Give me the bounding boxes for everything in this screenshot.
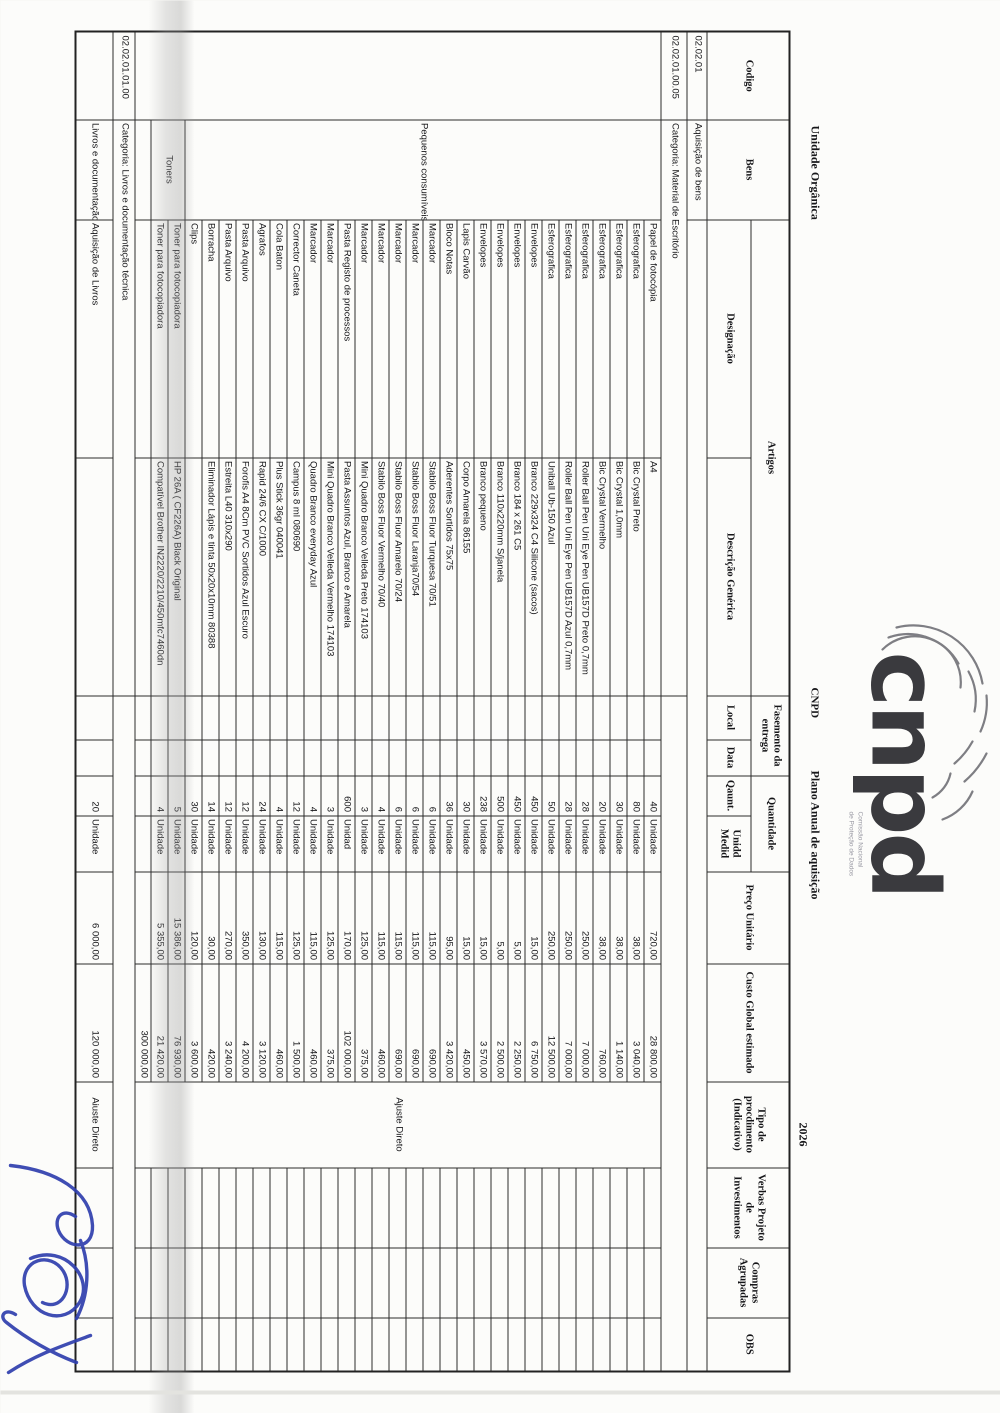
cell-data xyxy=(627,739,644,775)
cell-designacao: Pasta Arquivo xyxy=(236,219,253,457)
cell-custo: 375,00 xyxy=(355,963,372,1081)
table-row: Cola BatonPlus Stick 36gr 0400414Unidade… xyxy=(270,31,287,1371)
cell-descricao: Rapid 24/6 CX C/1000 xyxy=(253,457,270,695)
cell-custo: 7 000,00 xyxy=(559,963,576,1081)
cell-qty: 238 xyxy=(474,775,491,815)
cell-descricao: A4 xyxy=(644,457,661,695)
cell-designacao: Envelopes xyxy=(508,219,525,457)
cell-unit: Unidade xyxy=(440,815,457,871)
cell-qty: 12 xyxy=(236,775,253,815)
cell-local xyxy=(508,695,525,739)
signature xyxy=(0,1130,150,1413)
cell-local xyxy=(253,695,270,739)
cell-qty: 14 xyxy=(202,775,219,815)
cell-verbas xyxy=(270,1167,287,1247)
cell-tipo-procedimento: Ajuste Direto xyxy=(135,1081,661,1167)
cell-data xyxy=(202,739,219,775)
cell-obs xyxy=(253,1317,270,1371)
cell-local xyxy=(185,695,202,739)
cell-data xyxy=(135,739,151,775)
cell-unit: Unidade xyxy=(525,815,542,871)
table-row: Toner para fotocopiadoraCompatível Broth… xyxy=(151,31,168,1371)
cell-custo: 2 500,00 xyxy=(491,963,508,1081)
cell-local xyxy=(440,695,457,739)
cell-qty: 600 xyxy=(338,775,355,815)
cell-designacao: Cola Baton xyxy=(270,219,287,457)
cell-designacao: Pasta Arquivo xyxy=(219,219,236,457)
cell-preco: 5,00 xyxy=(508,871,525,963)
cell-unit: Unidad xyxy=(338,815,355,871)
cell-unit: Unidade xyxy=(491,815,508,871)
cell-local xyxy=(593,695,610,739)
row-aquisicao-bens: 02.02.01Aquisição de bens xyxy=(687,31,707,1371)
cell-data xyxy=(474,739,491,775)
cell-group-pequenos-consumiveis: Pequenos consumíveis xyxy=(185,119,661,219)
cell-qty: 24 xyxy=(253,775,270,815)
org-label: Unidade Orgânica xyxy=(807,125,822,219)
cell-obs xyxy=(287,1317,304,1371)
table-row: EsferograficaBic Crystal Preto80Unidade3… xyxy=(627,31,644,1371)
cell-qty: 3 xyxy=(321,775,338,815)
cell-compras xyxy=(389,1247,406,1317)
cell-designacao: Toner para fotocopiadora xyxy=(168,219,185,457)
cell-unit: Unidade xyxy=(423,815,440,871)
table-body: 02.02.01Aquisição de bens02.02.01.00.05C… xyxy=(75,31,707,1371)
cell-data xyxy=(610,739,627,775)
cell-local xyxy=(321,695,338,739)
cell-custo: 460,00 xyxy=(304,963,321,1081)
cell-local xyxy=(287,695,304,739)
cell-designacao: Marcador xyxy=(389,219,406,457)
cell-compras xyxy=(576,1247,593,1317)
table-row: MarcadorStabilo Boss Fluor Turquesa 70/5… xyxy=(423,31,440,1371)
cell-preco: 5,00 xyxy=(491,871,508,963)
cell-verbas xyxy=(423,1167,440,1247)
cell-preco: 95,00 xyxy=(440,871,457,963)
cell-verbas xyxy=(576,1167,593,1247)
cell-local xyxy=(389,695,406,739)
cell-codigo: 02.02.01.01.00 xyxy=(113,31,135,119)
col-header-custo: Custo Global estimado xyxy=(707,963,789,1081)
logo-wordmark: cnpd xyxy=(849,651,958,896)
cell-verbas xyxy=(168,1167,185,1247)
cell-qty: 30 xyxy=(185,775,202,815)
cell-custo: 3 240,00 xyxy=(219,963,236,1081)
cell-local xyxy=(491,695,508,739)
cell-unit: Unidade xyxy=(542,815,559,871)
cell-data xyxy=(423,739,440,775)
cell-qty: 6 xyxy=(423,775,440,815)
cell-group-toners: Toners xyxy=(151,119,185,219)
cell-preco: 115,00 xyxy=(304,871,321,963)
cell-preco: 38,00 xyxy=(627,871,644,963)
cell-empty xyxy=(687,219,707,1371)
cell-local xyxy=(338,695,355,739)
cell-qty: 4 xyxy=(151,775,168,815)
cell-unit: Unidade xyxy=(644,815,661,871)
cell-obs xyxy=(389,1317,406,1371)
cell-verbas xyxy=(491,1167,508,1247)
cell-obs xyxy=(338,1317,355,1371)
cell-data xyxy=(287,739,304,775)
cell-designacao: Papel de fotocópia xyxy=(644,219,661,457)
cell-compras xyxy=(236,1247,253,1317)
cell-preco: 5 355,00 xyxy=(151,871,168,963)
cell-descricao xyxy=(75,457,113,695)
cell-local xyxy=(151,695,168,739)
cell-qty: 450 xyxy=(525,775,542,815)
table-row: MarcadorQuadro Branco everyday Azul4Unid… xyxy=(304,31,321,1371)
cell-qty: 4 xyxy=(372,775,389,815)
cell-designacao: Marcador xyxy=(321,219,338,457)
cell-compras xyxy=(644,1247,661,1317)
cell-designacao: Esferografica xyxy=(610,219,627,457)
cell-obs xyxy=(185,1317,202,1371)
cell-verbas xyxy=(542,1167,559,1247)
cell-preco: 720,00 xyxy=(644,871,661,963)
cell-preco xyxy=(135,871,151,963)
cell-verbas xyxy=(202,1167,219,1247)
cell-custo: 4 200,00 xyxy=(236,963,253,1081)
rotated-sheet: cnpd Comissão Nacional de Proteção de Da… xyxy=(0,0,1000,1413)
cell-designacao: Marcador xyxy=(423,219,440,457)
cell-data xyxy=(219,739,236,775)
cell-verbas xyxy=(525,1167,542,1247)
cell-designacao: Esferografica xyxy=(593,219,610,457)
cell-data xyxy=(75,739,113,775)
cell-obs xyxy=(525,1317,542,1371)
cell-verbas xyxy=(304,1167,321,1247)
cell-designacao: Pasta Registo de processos xyxy=(338,219,355,457)
cell-custo: 28 800,00 xyxy=(644,963,661,1081)
header-super-row: Codigo Bens Artigos Fasemento da entrega… xyxy=(751,31,789,1371)
cell-local xyxy=(304,695,321,739)
table-row: MarcadorMini Quadro Branco Velleda Preto… xyxy=(355,31,372,1371)
cell-data xyxy=(406,739,423,775)
cell-descricao xyxy=(135,457,151,695)
cell-local xyxy=(406,695,423,739)
cell-obs xyxy=(644,1317,661,1371)
cell-verbas xyxy=(474,1167,491,1247)
cell-obs xyxy=(372,1317,389,1371)
cell-unit: Unidade xyxy=(355,815,372,871)
cell-preco: 15 386,00 xyxy=(168,871,185,963)
table-row: BorrachaEliminador Lápis e tinta 50x20x1… xyxy=(202,31,219,1371)
cell-custo: 21 420,00 xyxy=(151,963,168,1081)
cell-categoria-label: Categoria: Livros e documentação técnica xyxy=(113,119,135,695)
cell-compras xyxy=(457,1247,474,1317)
cell-local xyxy=(610,695,627,739)
cell-designacao: Esferografica xyxy=(559,219,576,457)
cell-data xyxy=(338,739,355,775)
cell-compras xyxy=(542,1247,559,1317)
cell-custo: 375,00 xyxy=(321,963,338,1081)
cell-descricao: Estreita L40 310x290 xyxy=(219,457,236,695)
col-header-preco: Preço Unitário xyxy=(707,871,789,963)
cell-compras xyxy=(372,1247,389,1317)
cell-designacao: Clips xyxy=(185,219,202,457)
cell-unit: Unidade xyxy=(270,815,287,871)
cell-qty: 500 xyxy=(491,775,508,815)
cell-designacao: Marcador xyxy=(372,219,389,457)
table-row: EsferograficaUniball Ub-150 Azul50Unidad… xyxy=(542,31,559,1371)
cell-unit: Unidade xyxy=(372,815,389,871)
cell-descricao: Pasta Assuntos Azul, Branco e Amarela xyxy=(338,457,355,695)
cell-verbas xyxy=(508,1167,525,1247)
cell-custo: 690,00 xyxy=(406,963,423,1081)
cell-data xyxy=(559,739,576,775)
col-header-verbas: Verbas Projeto de Investimentos xyxy=(707,1167,789,1247)
cell-preco: 250,00 xyxy=(542,871,559,963)
cell-data xyxy=(355,739,372,775)
cell-preco: 125,00 xyxy=(321,871,338,963)
cell-unit xyxy=(135,815,151,871)
col-header-qaunt: Qaunt. xyxy=(707,775,751,815)
cell-compras xyxy=(185,1247,202,1317)
col-header-artigos: Artigos xyxy=(751,219,789,695)
cell-bens-label: Aquisição de bens xyxy=(687,119,707,219)
cell-bens xyxy=(135,119,151,219)
cell-designacao: Agrafos xyxy=(253,219,270,457)
acquisition-plan-table: Codigo Bens Artigos Fasemento da entrega… xyxy=(74,30,790,1372)
table-row: Pasta Registo de processosPasta Assuntos… xyxy=(338,31,355,1371)
cell-obs xyxy=(542,1317,559,1371)
cell-verbas xyxy=(627,1167,644,1247)
cell-designacao xyxy=(135,219,151,457)
cell-qty: 36 xyxy=(440,775,457,815)
cell-unit: Unidade xyxy=(202,815,219,871)
cell-custo: 420,00 xyxy=(202,963,219,1081)
cell-compras xyxy=(440,1247,457,1317)
cell-descricao: Forofis A4 8Cm PVC Sortidos Azul Escuro xyxy=(236,457,253,695)
cell-qty: 4 xyxy=(304,775,321,815)
cell-data xyxy=(389,739,406,775)
cell-designacao: Esferografica xyxy=(542,219,559,457)
col-header-compras: Compras Agrupadas xyxy=(707,1247,789,1317)
cell-preco: 115,00 xyxy=(270,871,287,963)
cell-unit: Unidade xyxy=(304,815,321,871)
cell-data xyxy=(236,739,253,775)
table-row: Clips30Unidade120,003 600,00 xyxy=(185,31,202,1371)
cell-local xyxy=(457,695,474,739)
cell-descricao: Stabilo Boss Fluor Amarelo 70/24 xyxy=(389,457,406,695)
cell-unit: Unidade xyxy=(406,815,423,871)
cell-data xyxy=(457,739,474,775)
cell-data xyxy=(372,739,389,775)
cell-descricao xyxy=(185,457,202,695)
cell-obs xyxy=(151,1317,168,1371)
cell-compras xyxy=(525,1247,542,1317)
cell-obs xyxy=(168,1317,185,1371)
scanned-page: { "page": { "org_label": "Unidade Orgâni… xyxy=(0,0,1000,1413)
cell-local xyxy=(135,695,151,739)
row-categoria-material: 02.02.01.00.05Categoria: Material de Esc… xyxy=(661,31,687,1371)
cell-verbas xyxy=(219,1167,236,1247)
cell-local xyxy=(75,695,113,739)
cell-qty: 4 xyxy=(270,775,287,815)
cell-preco: 115,00 xyxy=(406,871,423,963)
cell-descricao: Corpo Amarela 86155 xyxy=(457,457,474,695)
cell-verbas xyxy=(610,1167,627,1247)
col-header-unidd: Unidd Medid xyxy=(707,815,751,871)
cell-local xyxy=(202,695,219,739)
cell-preco: 170,00 xyxy=(338,871,355,963)
cell-data xyxy=(321,739,338,775)
cell-compras xyxy=(593,1247,610,1317)
cell-qty: 3 xyxy=(355,775,372,815)
table-row: MarcadorMini Quadro Branco Velleda Verme… xyxy=(321,31,338,1371)
cnpd-abbrev: CNPD xyxy=(808,687,820,718)
cell-verbas xyxy=(338,1167,355,1247)
cell-unit: Unidade xyxy=(576,815,593,871)
cell-preco: 115,00 xyxy=(372,871,389,963)
cell-obs xyxy=(559,1317,576,1371)
cell-verbas xyxy=(559,1167,576,1247)
cell-local xyxy=(270,695,287,739)
cell-preco: 30,00 xyxy=(202,871,219,963)
cell-preco: 115,00 xyxy=(389,871,406,963)
cell-compras xyxy=(610,1247,627,1317)
cell-designacao: Marcador xyxy=(355,219,372,457)
cell-qty: 20 xyxy=(75,775,113,815)
cell-obs xyxy=(219,1317,236,1371)
cell-compras xyxy=(491,1247,508,1317)
cell-descricao: Bic Crystal Preto xyxy=(627,457,644,695)
cell-compras xyxy=(304,1247,321,1317)
cell-compras xyxy=(423,1247,440,1317)
cell-preco: 270,00 xyxy=(219,871,236,963)
cell-custo: 3 570,00 xyxy=(474,963,491,1081)
cell-local xyxy=(168,695,185,739)
cell-verbas xyxy=(236,1167,253,1247)
cell-local xyxy=(559,695,576,739)
cell-qty: 28 xyxy=(559,775,576,815)
cell-obs xyxy=(440,1317,457,1371)
cell-obs xyxy=(304,1317,321,1371)
cell-preco: 6 000,00 xyxy=(75,871,113,963)
table-header: Codigo Bens Artigos Fasemento da entrega… xyxy=(707,31,789,1371)
cell-descricao: Stabilo Boss Fluor Turquesa 70/51 xyxy=(423,457,440,695)
cell-data xyxy=(185,739,202,775)
cell-unit: Unidade xyxy=(287,815,304,871)
cell-custo: 3 600,00 xyxy=(185,963,202,1081)
cell-designacao: Corrector Caneta xyxy=(287,219,304,457)
cell-descricao: Branco 184 x 261 C5 xyxy=(508,457,525,695)
cell-compras xyxy=(202,1247,219,1317)
cell-qty: 50 xyxy=(542,775,559,815)
cell-descricao: Aderentes Sortidos 75x75 xyxy=(440,457,457,695)
cell-codigo: 02.02.01 xyxy=(687,31,707,119)
cell-descricao: Plus Stick 36gr 040041 xyxy=(270,457,287,695)
cell-preco: 250,00 xyxy=(559,871,576,963)
table-row: MarcadorStabilo Boss Fluor Amarelo 70/24… xyxy=(389,31,406,1371)
cell-unit: Unidade xyxy=(253,815,270,871)
cell-designacao: Esferografica xyxy=(627,219,644,457)
cell-unit: Unidade xyxy=(321,815,338,871)
cell-compras xyxy=(355,1247,372,1317)
col-header-local: Local xyxy=(707,695,751,739)
cell-qty: 80 xyxy=(627,775,644,815)
cell-preco: 38,00 xyxy=(593,871,610,963)
col-header-codigo: Codigo xyxy=(707,31,789,119)
cell-obs xyxy=(406,1317,423,1371)
cell-custo: 2 250,00 xyxy=(508,963,525,1081)
cell-unit: Unidade xyxy=(185,815,202,871)
cell-qty: 5 xyxy=(168,775,185,815)
cell-custo: 120 000,00 xyxy=(75,963,113,1081)
cell-obs xyxy=(457,1317,474,1371)
cell-compras xyxy=(627,1247,644,1317)
cell-data xyxy=(253,739,270,775)
cell-empty xyxy=(661,695,687,1371)
cell-custo: 1 140,00 xyxy=(610,963,627,1081)
cell-verbas xyxy=(355,1167,372,1247)
cell-obs xyxy=(627,1317,644,1371)
cell-unit: Unidade xyxy=(389,815,406,871)
cell-qty: 40 xyxy=(644,775,661,815)
cell-unit: Unidade xyxy=(610,815,627,871)
cell-custo: 1 500,00 xyxy=(287,963,304,1081)
col-header-bens: Bens xyxy=(707,119,789,219)
cell-descricao: Mini Quadro Branco Velleda Preto 174103 xyxy=(355,457,372,695)
cell-descricao: Bic Crystal Vermelho xyxy=(593,457,610,695)
table-row: Pasta ArquivoEstreita L40 310x29012Unida… xyxy=(219,31,236,1371)
cell-designacao: Marcador xyxy=(406,219,423,457)
cell-descricao: Campus 8 ml 080690 xyxy=(287,457,304,695)
cell-qty: 30 xyxy=(610,775,627,815)
cell-verbas xyxy=(644,1167,661,1247)
cell-data xyxy=(525,739,542,775)
cell-unit: Unidade xyxy=(75,815,113,871)
cell-designacao: Esferografica xyxy=(576,219,593,457)
col-header-quantidade: Quantidade xyxy=(751,775,789,871)
col-header-descricao: Descrição Genérica xyxy=(707,457,751,695)
cell-custo: 12 500,00 xyxy=(542,963,559,1081)
table-row: MarcadorStabilo Boss Fluor Vermelho 70/4… xyxy=(372,31,389,1371)
cell-preco: 130,00 xyxy=(253,871,270,963)
cell-data xyxy=(491,739,508,775)
cell-custo: 690,00 xyxy=(389,963,406,1081)
cell-custo: 6 750,00 xyxy=(525,963,542,1081)
cell-descricao: Branco 110x220mm S/janela xyxy=(491,457,508,695)
cell-designacao: Bloco Notas xyxy=(440,219,457,457)
cell-verbas xyxy=(287,1167,304,1247)
cell-local xyxy=(542,695,559,739)
cell-custo: 450,00 xyxy=(457,963,474,1081)
cell-preco: 38,00 xyxy=(610,871,627,963)
col-header-designacao: Designação xyxy=(707,219,751,457)
cell-preco: 120,00 xyxy=(185,871,202,963)
table-row: TonersToner para fotocopiadoraHP 26A ( C… xyxy=(168,31,185,1371)
table-row: EsferograficaBic Crystal Vermelho20Unida… xyxy=(593,31,610,1371)
cell-obs xyxy=(423,1317,440,1371)
cnpd-logo: cnpd Comissão Nacional de Proteção de Da… xyxy=(834,615,994,905)
table-row: EnvelopesBranco pequeno238Unidade15,003 … xyxy=(474,31,491,1371)
cell-compras xyxy=(253,1247,270,1317)
logo-subtext-1: Comissão Nacional xyxy=(856,811,863,868)
logo-subtext-2: de Proteção de Dados xyxy=(847,811,854,876)
cell-obs xyxy=(610,1317,627,1371)
cell-unit: Unidade xyxy=(474,815,491,871)
cell-data xyxy=(542,739,559,775)
cell-designacao: Lapis Carvão xyxy=(457,219,474,457)
cell-compras xyxy=(270,1247,287,1317)
table-row: AgrafosRapid 24/6 CX C/100024Unidade130,… xyxy=(253,31,270,1371)
cell-data xyxy=(440,739,457,775)
cell-local xyxy=(372,695,389,739)
cell-descricao: Roller Ball Pen Uni Eye Pen UB157D Azul … xyxy=(559,457,576,695)
cell-compras xyxy=(287,1247,304,1317)
